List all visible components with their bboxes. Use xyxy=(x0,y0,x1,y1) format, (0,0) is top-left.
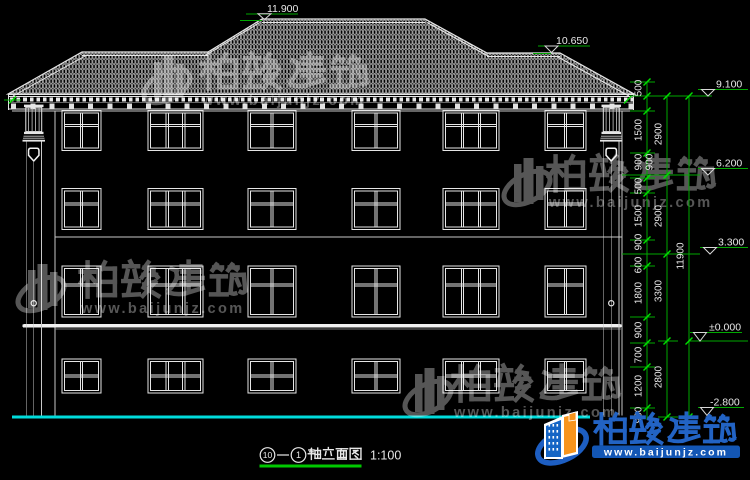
svg-text:1200: 1200 xyxy=(634,374,645,397)
svg-text:10.650: 10.650 xyxy=(556,35,588,47)
svg-text:2900: 2900 xyxy=(654,122,665,145)
svg-text:900: 900 xyxy=(634,153,645,170)
svg-text:3300: 3300 xyxy=(654,279,665,302)
svg-text:www.baijunjz.com: www.baijunjz.com xyxy=(201,93,366,109)
svg-text:900: 900 xyxy=(645,153,656,170)
svg-text:9.100: 9.100 xyxy=(716,79,742,91)
svg-text:±0.000: ±0.000 xyxy=(709,322,741,334)
svg-text:1500: 1500 xyxy=(634,118,645,141)
svg-text:1: 1 xyxy=(296,450,301,460)
svg-text:700: 700 xyxy=(634,346,645,363)
svg-text:6.200: 6.200 xyxy=(716,158,742,170)
svg-text:www.baijunjz.com: www.baijunjz.com xyxy=(80,301,245,317)
svg-text:1:100: 1:100 xyxy=(370,449,401,463)
svg-text:1500: 1500 xyxy=(634,204,645,227)
svg-text:www.baijunjz.com: www.baijunjz.com xyxy=(548,195,713,211)
svg-text:www.baijunjz.com: www.baijunjz.com xyxy=(603,446,728,458)
svg-text:2800: 2800 xyxy=(654,365,665,388)
svg-text:10: 10 xyxy=(263,450,273,460)
svg-text:2900: 2900 xyxy=(654,204,665,227)
svg-text:900: 900 xyxy=(634,321,645,338)
svg-text:3.300: 3.300 xyxy=(718,237,744,249)
svg-text:11900: 11900 xyxy=(676,242,687,270)
svg-text:www.baijunjz.com: www.baijunjz.com xyxy=(453,405,618,421)
svg-text:-2.800: -2.800 xyxy=(710,397,740,409)
svg-text:500: 500 xyxy=(634,79,645,96)
svg-text:600: 600 xyxy=(634,256,645,273)
svg-text:900: 900 xyxy=(634,233,645,250)
svg-text:1800: 1800 xyxy=(634,281,645,304)
svg-text:11.900: 11.900 xyxy=(267,3,298,15)
svg-text:500: 500 xyxy=(634,177,645,194)
